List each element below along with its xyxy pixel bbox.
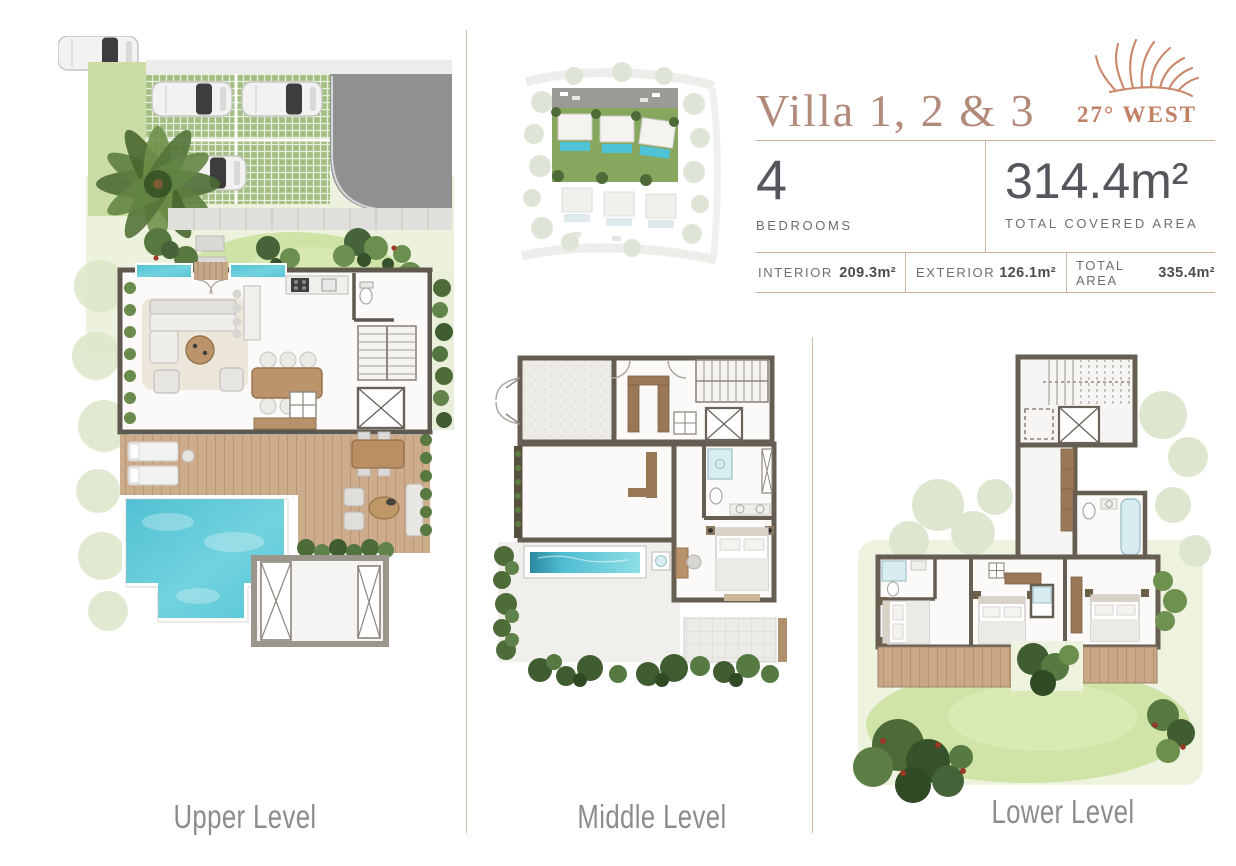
upper-floorplan xyxy=(120,262,430,432)
upper-level-label: Upper Level xyxy=(144,798,347,836)
covered-area-label: TOTAL COVERED AREA xyxy=(1005,216,1198,231)
center-planting xyxy=(1011,641,1083,696)
stat-total-area-value: 335.4m² xyxy=(1158,265,1215,281)
patio xyxy=(684,618,776,662)
header-rule-stats-bottom xyxy=(756,292,1215,293)
driveway-asphalt xyxy=(330,74,452,212)
brochure-page: { "header": { "title": "Villa 1, 2 & 3",… xyxy=(0,0,1236,866)
sideboard xyxy=(254,418,316,429)
brand-logo: 27° WEST xyxy=(1058,34,1216,128)
site-highlighted-villas xyxy=(551,88,679,186)
deck-right xyxy=(1083,647,1157,683)
brand-name: 27° WEST xyxy=(1058,102,1216,128)
site-plan xyxy=(512,42,724,278)
stat-total-area: TOTAL AREA 335.4m² xyxy=(1076,253,1215,292)
section-divider-left xyxy=(466,30,467,833)
bedrooms-value: 4 xyxy=(756,152,853,208)
header-rule-mid-vertical xyxy=(985,141,986,252)
covered-area-stat: 314.4m² TOTAL COVERED AREA xyxy=(1005,156,1198,231)
page-title: Villa 1, 2 & 3 xyxy=(756,84,1036,137)
stats-separator-1 xyxy=(905,253,906,292)
bed-a xyxy=(879,597,929,645)
lower-level-plan xyxy=(843,345,1218,805)
entry-water-feature xyxy=(230,264,286,278)
patio-deck-edge xyxy=(778,618,787,662)
elevator xyxy=(706,408,742,440)
lower-level-label: Lower Level xyxy=(962,793,1165,831)
courtyard-void xyxy=(254,558,386,644)
stairs xyxy=(358,326,416,380)
side-garden xyxy=(432,272,454,430)
bedrooms-label: BEDROOMS xyxy=(756,218,853,233)
bedrooms-stat: 4 BEDROOMS xyxy=(756,152,853,233)
stat-exterior-label: EXTERIOR xyxy=(916,265,995,280)
section-divider-right xyxy=(812,337,813,833)
living-room xyxy=(142,298,248,393)
entry-water-feature xyxy=(136,264,192,278)
outdoor-shower xyxy=(652,552,670,570)
covered-area-value: 314.4m² xyxy=(1005,156,1198,206)
bedroom-wing xyxy=(878,557,1158,647)
palm-frond-icon xyxy=(1058,34,1216,100)
bathroom-main xyxy=(1075,493,1145,563)
deck-left xyxy=(878,647,1011,687)
stat-interior-value: 209.3m² xyxy=(839,265,896,281)
stat-exterior: EXTERIOR 126.1m² xyxy=(916,253,1056,292)
garage-doors xyxy=(496,378,520,424)
corridor-closet xyxy=(1061,449,1074,531)
lap-pool xyxy=(524,546,646,578)
elevator xyxy=(358,388,404,428)
upper-level-plan xyxy=(58,36,460,702)
stat-interior-label: INTERIOR xyxy=(758,265,833,280)
stairs xyxy=(696,360,768,402)
bed-c xyxy=(1085,589,1149,641)
stat-interior: INTERIOR 209.3m² xyxy=(758,253,896,292)
stats-separator-2 xyxy=(1066,253,1067,292)
middle-level-plan xyxy=(478,332,808,764)
middle-level-label: Middle Level xyxy=(551,798,754,836)
stat-exterior-value: 126.1m² xyxy=(999,265,1056,281)
site-faded-villas xyxy=(562,188,676,241)
stat-total-area-label: TOTAL AREA xyxy=(1076,258,1158,288)
